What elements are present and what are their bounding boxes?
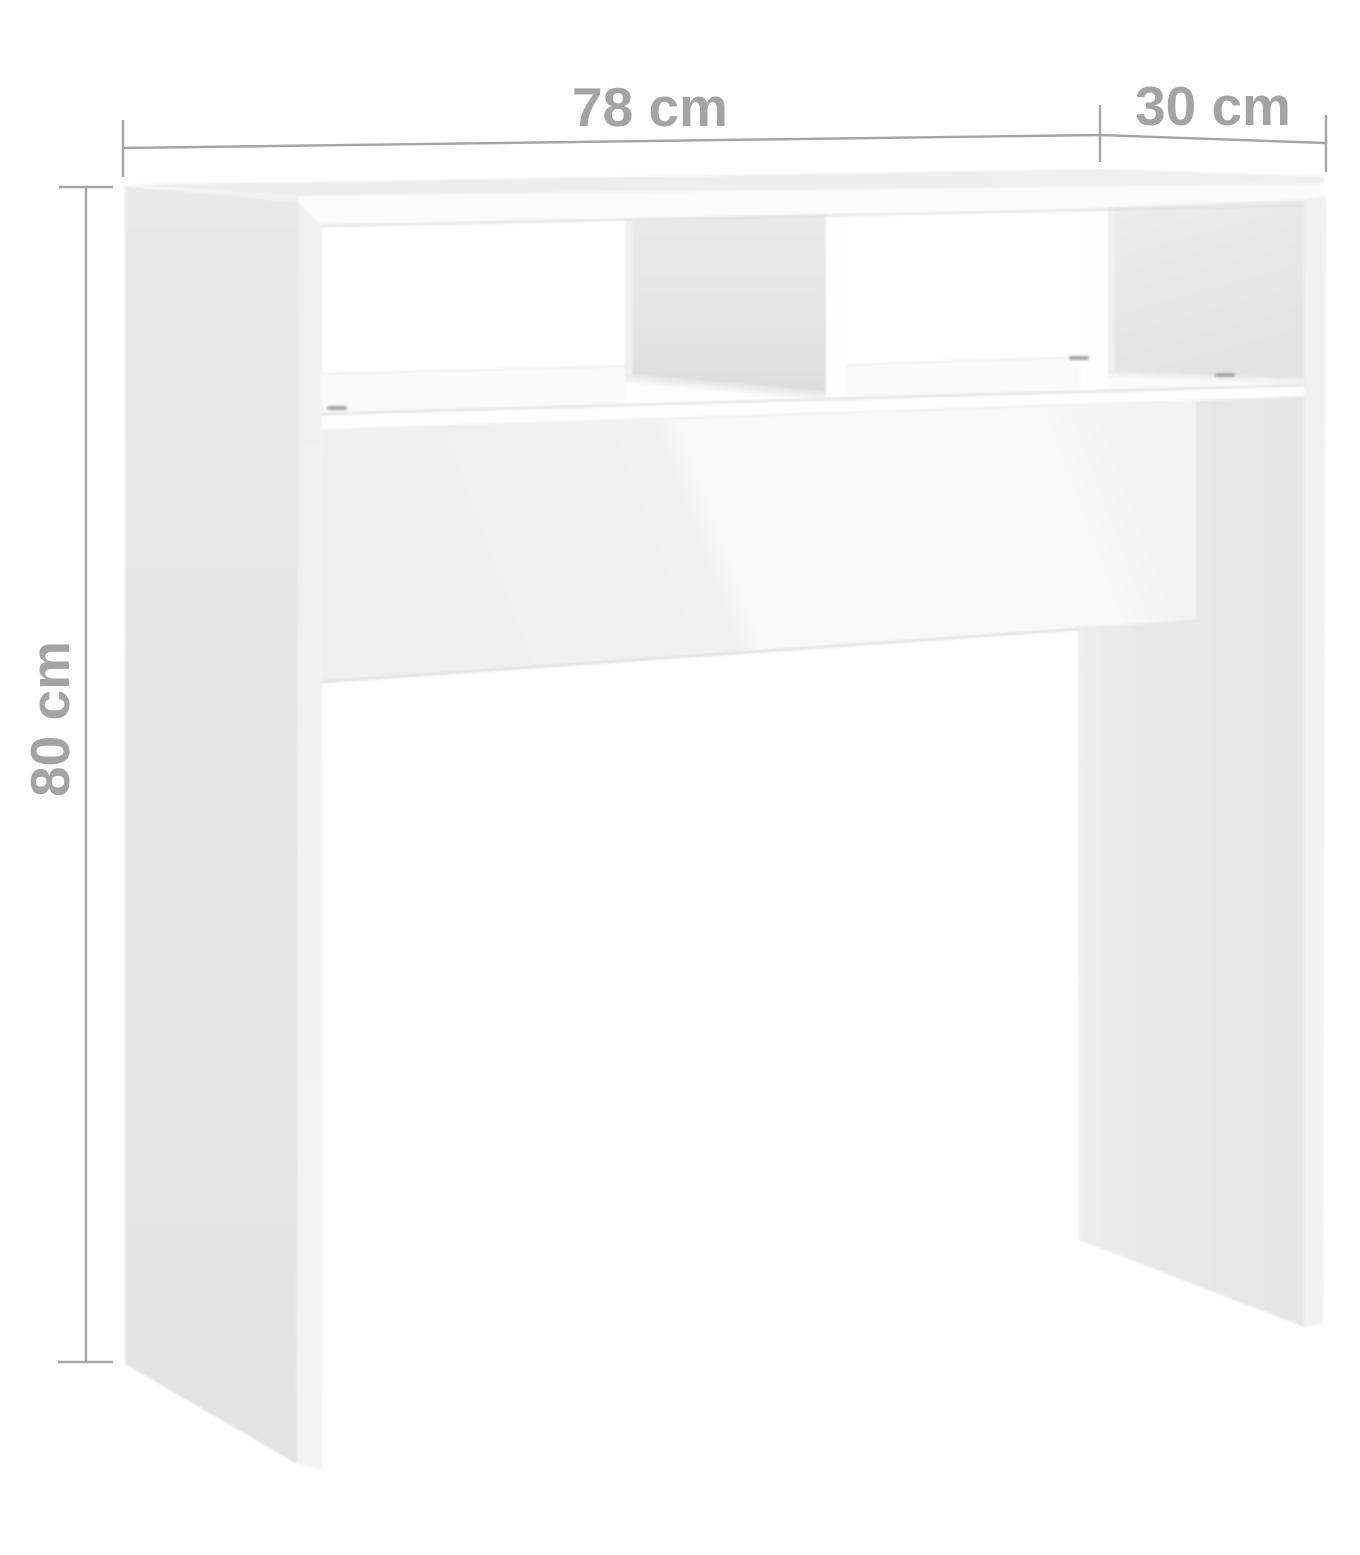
- svg-text:30 cm: 30 cm: [1135, 75, 1291, 137]
- svg-text:78 cm: 78 cm: [572, 76, 728, 138]
- svg-text:80 cm: 80 cm: [19, 641, 81, 797]
